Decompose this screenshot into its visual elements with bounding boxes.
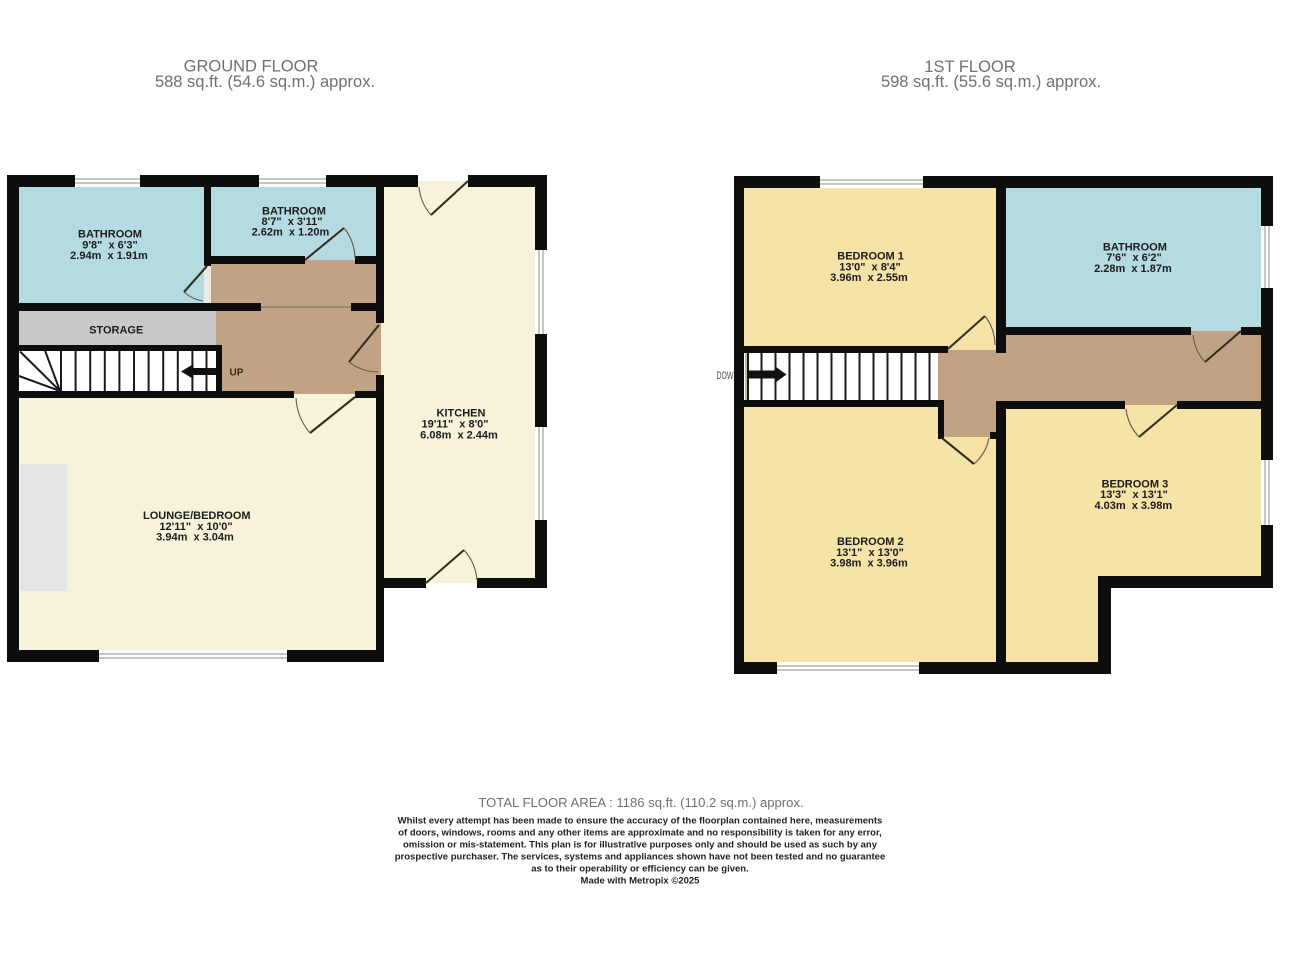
svg-text:Made with Metropix ©2025: Made with Metropix ©2025 <box>581 876 701 887</box>
svg-text:STORAGE: STORAGE <box>89 325 143 337</box>
svg-text:UP: UP <box>230 368 244 379</box>
svg-text:2.62m x 1.20m: 2.62m x 1.20m <box>252 227 330 239</box>
svg-text:3.94m x 3.04m: 3.94m x 3.04m <box>156 532 234 544</box>
svg-text:2.94m x 1.91m: 2.94m x 1.91m <box>70 250 148 262</box>
svg-text:TOTAL FLOOR AREA : 1186 sq.ft.: TOTAL FLOOR AREA : 1186 sq.ft. (110.2 sq… <box>478 795 803 810</box>
svg-text:4.03m x 3.98m: 4.03m x 3.98m <box>1094 500 1172 512</box>
svg-text:as to their operability or eff: as to their operability or efficiency ca… <box>531 864 749 875</box>
svg-text:2.28m x 1.87m: 2.28m x 1.87m <box>1094 263 1172 275</box>
svg-text:598 sq.ft. (55.6 sq.m.) approx: 598 sq.ft. (55.6 sq.m.) approx. <box>881 73 1101 91</box>
svg-text:prospective purchaser. The ser: prospective purchaser. The services, sys… <box>395 852 885 863</box>
svg-text:588 sq.ft. (54.6 sq.m.) approx: 588 sq.ft. (54.6 sq.m.) approx. <box>155 73 375 91</box>
svg-text:omission or mis-statement. Thi: omission or mis-statement. This plan is … <box>403 840 878 851</box>
svg-text:3.96m x 2.55m: 3.96m x 2.55m <box>830 272 908 284</box>
svg-text:of doors, windows, rooms and a: of doors, windows, rooms and any other i… <box>398 828 882 839</box>
svg-text:Whilst every attempt has been: Whilst every attempt has been made to en… <box>398 815 883 826</box>
svg-text:6.08m x 2.44m: 6.08m x 2.44m <box>420 430 498 442</box>
svg-text:3.98m x 3.96m: 3.98m x 3.96m <box>830 557 908 569</box>
